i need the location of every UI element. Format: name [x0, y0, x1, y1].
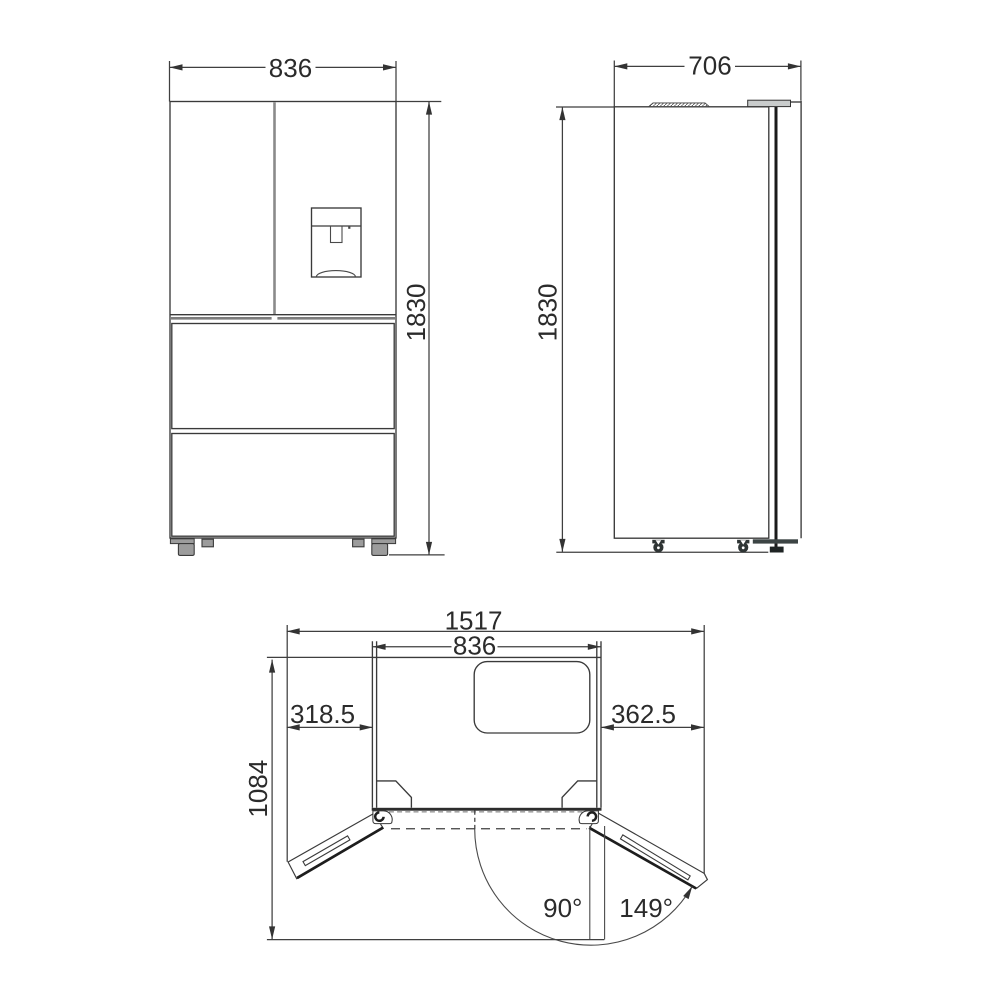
- svg-text:318.5: 318.5: [290, 699, 355, 729]
- svg-text:706: 706: [688, 51, 731, 81]
- svg-text:1830: 1830: [533, 283, 563, 341]
- svg-text:836: 836: [269, 53, 312, 83]
- svg-text:836: 836: [453, 631, 496, 661]
- svg-text:149°: 149°: [619, 893, 673, 923]
- svg-text:362.5: 362.5: [611, 699, 676, 729]
- svg-text:1830: 1830: [401, 284, 431, 342]
- svg-text:90°: 90°: [543, 893, 582, 923]
- svg-text:1084: 1084: [243, 760, 273, 818]
